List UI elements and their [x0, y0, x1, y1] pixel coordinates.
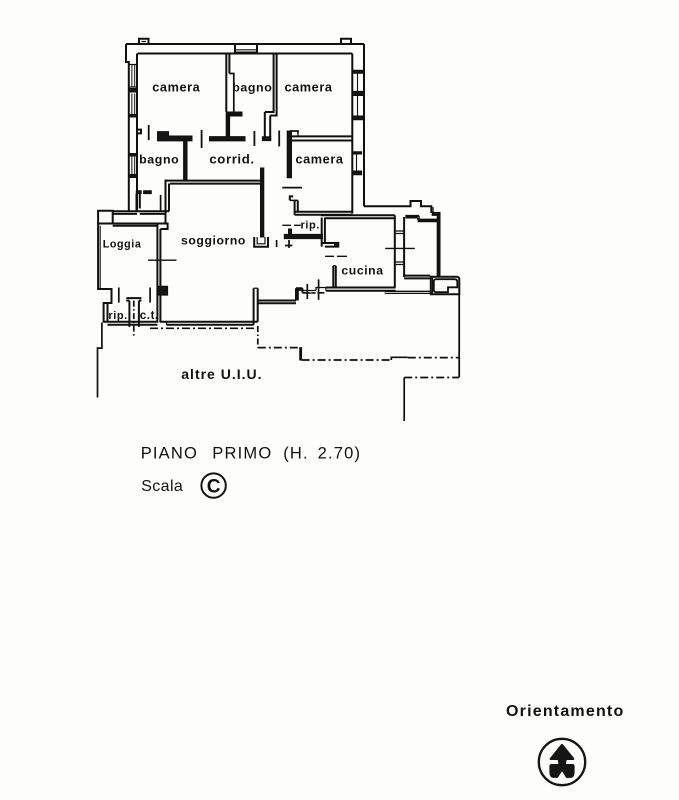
svg-text:Orientamento: Orientamento [506, 703, 624, 720]
svg-text:C: C [207, 476, 221, 497]
svg-text:cucina: cucina [341, 264, 383, 278]
svg-text:bagno: bagno [139, 153, 179, 167]
svg-text:altre U.I.U.: altre U.I.U. [181, 366, 262, 382]
svg-text:2.70): 2.70) [318, 445, 362, 463]
svg-text:c.t.: c.t. [140, 309, 159, 322]
svg-text:camera: camera [295, 153, 343, 167]
svg-text:Loggia: Loggia [103, 239, 142, 251]
svg-text:PRIMO: PRIMO [212, 445, 272, 463]
svg-text:Scala: Scala [141, 478, 183, 495]
svg-text:bagno: bagno [232, 81, 272, 95]
svg-text:rip.: rip. [300, 220, 320, 232]
svg-text:rip.: rip. [108, 310, 128, 322]
svg-text:PIANO: PIANO [141, 445, 198, 463]
svg-text:camera: camera [284, 81, 332, 95]
svg-text:corrid.: corrid. [209, 152, 254, 167]
svg-text:(H.: (H. [283, 445, 309, 463]
svg-text:soggiorno: soggiorno [181, 234, 246, 248]
svg-text:camera: camera [152, 81, 200, 95]
